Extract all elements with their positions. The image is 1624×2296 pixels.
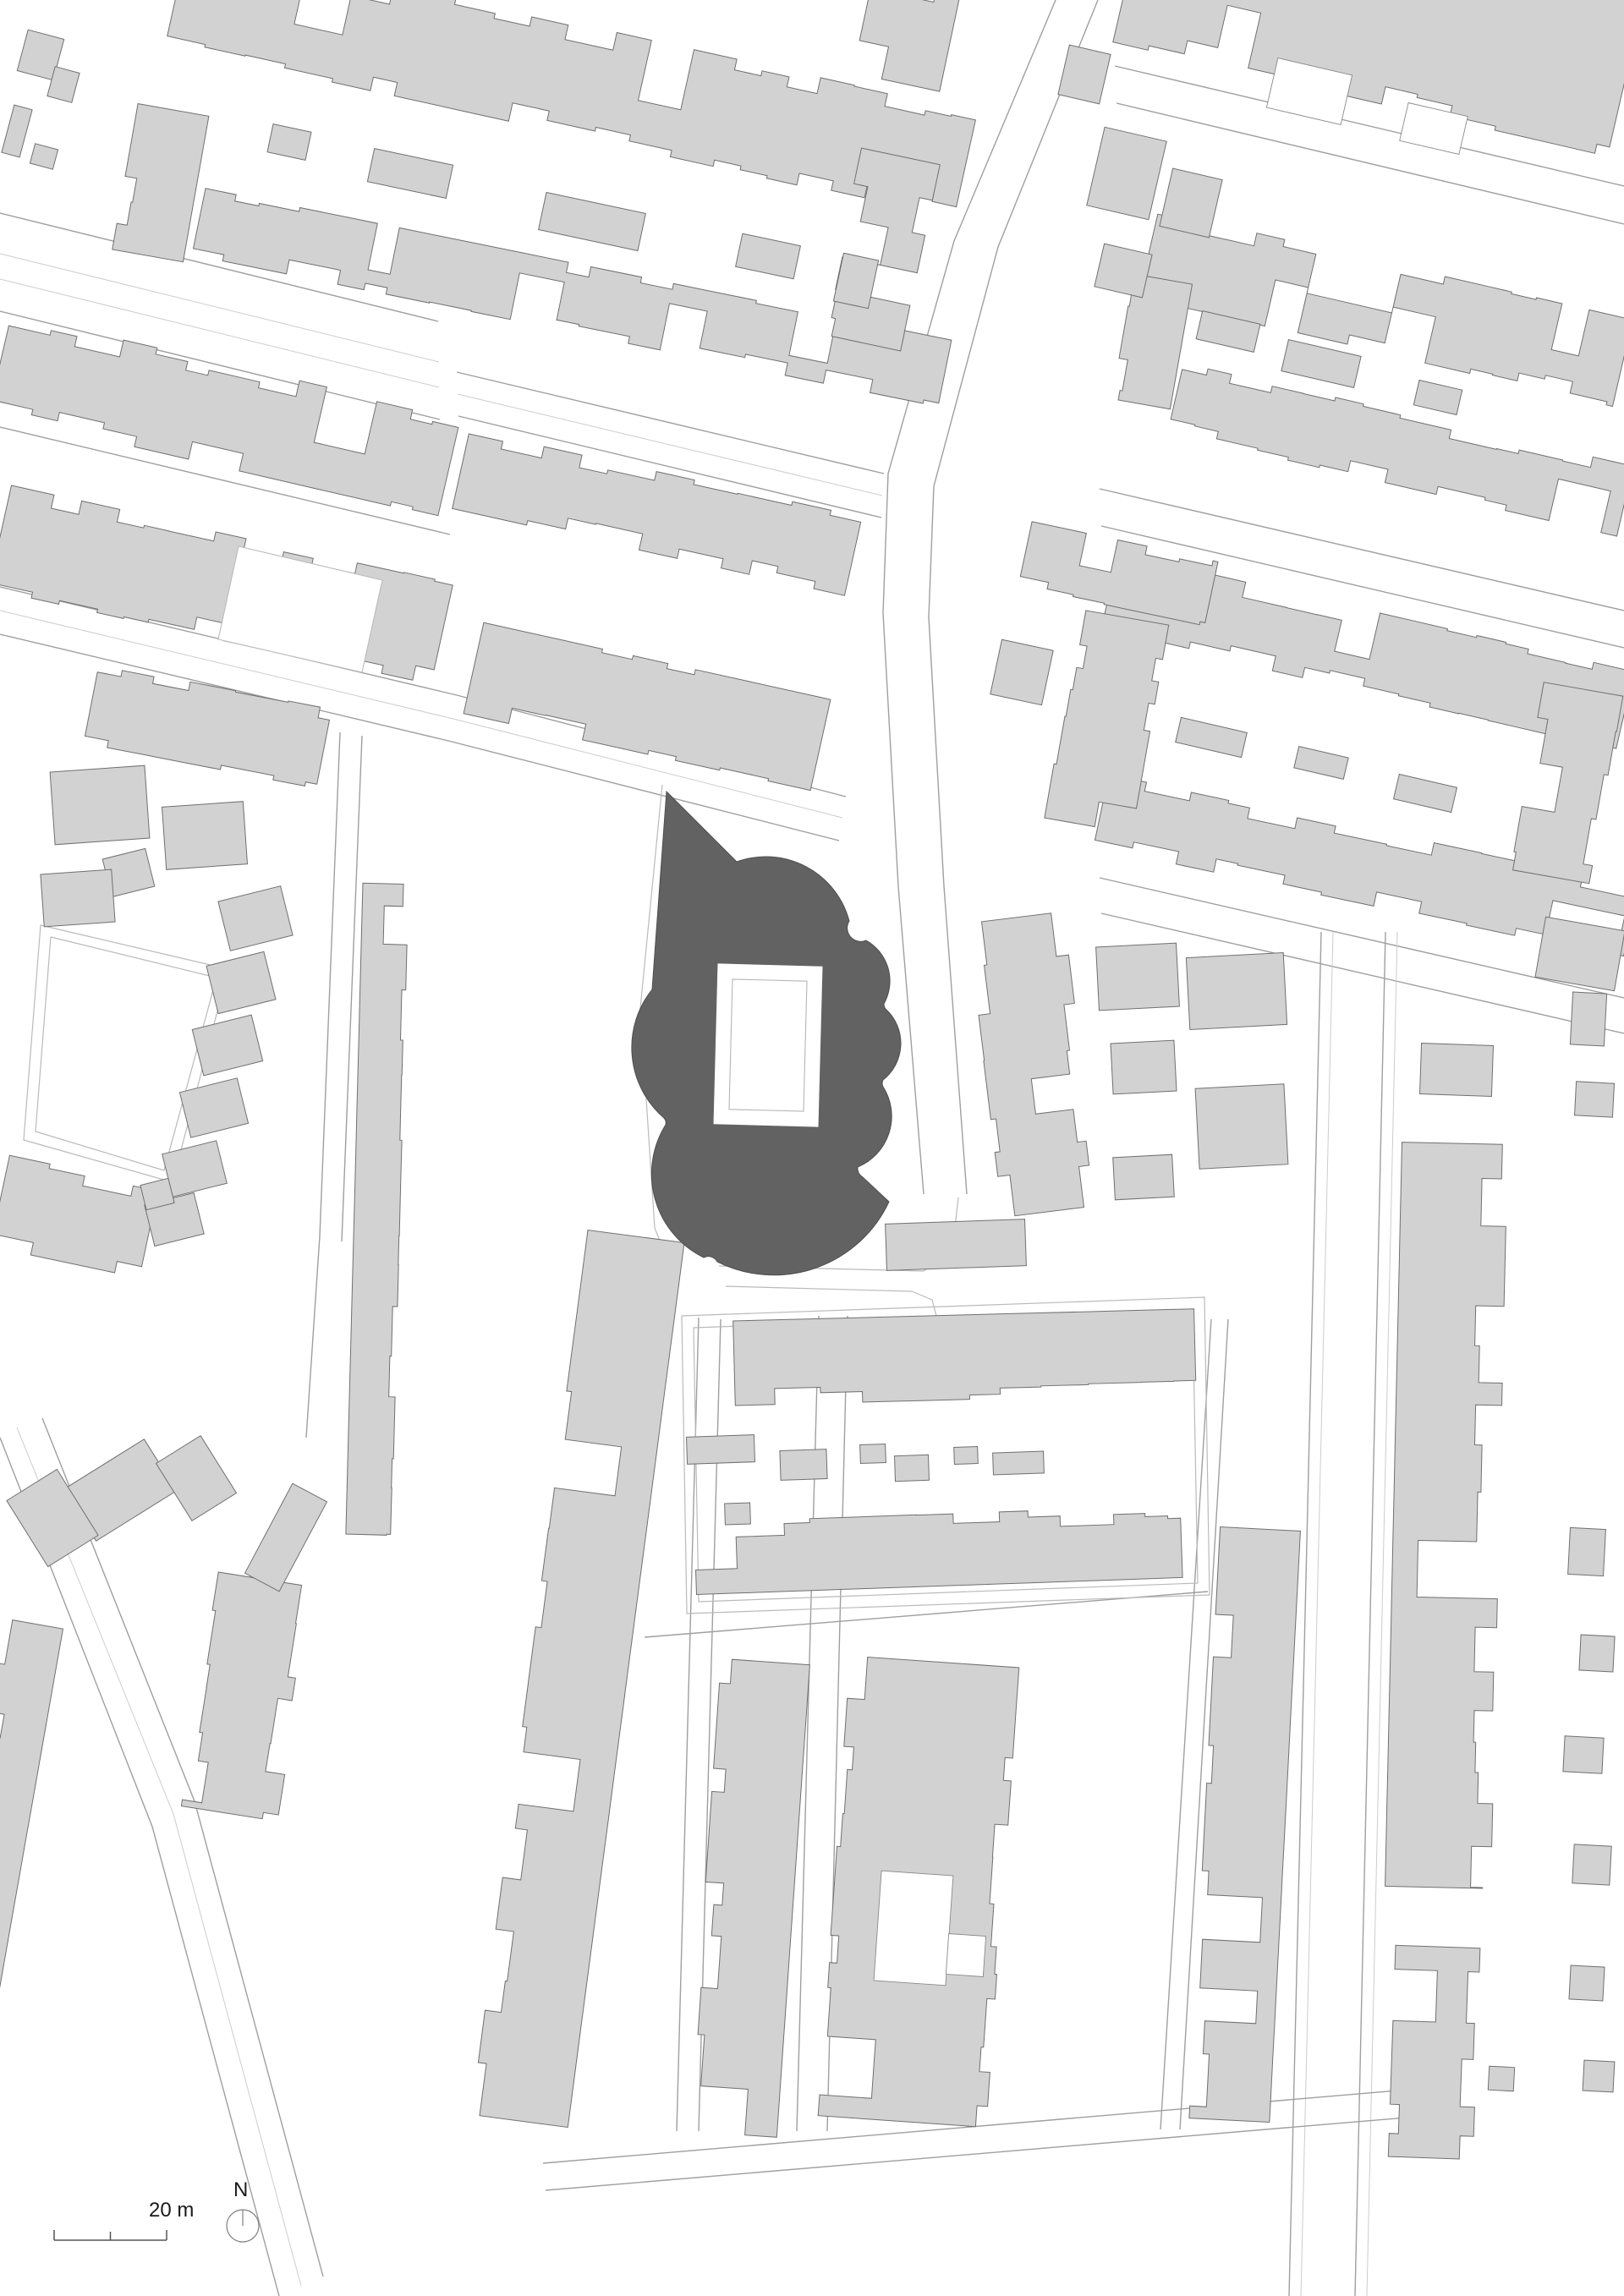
building (1281, 340, 1361, 388)
building (1413, 381, 1462, 415)
building (41, 869, 115, 927)
building (1087, 127, 1166, 219)
building-band (346, 883, 407, 1535)
building-band (1189, 1527, 1301, 2123)
building (1186, 953, 1287, 1030)
building-band (112, 104, 209, 262)
building-band (1171, 369, 1624, 536)
building (1096, 943, 1180, 1011)
courtyard-hole (874, 1871, 953, 1986)
building (780, 1449, 827, 1481)
building (1294, 747, 1348, 780)
building (1563, 1736, 1604, 1773)
building-band (0, 1155, 158, 1273)
building-band (181, 1572, 301, 1819)
building (2, 105, 32, 157)
site-plan-page: 20 m N (0, 0, 1624, 2296)
scale-bar (52, 2222, 171, 2244)
building (860, 1444, 886, 1464)
building (50, 765, 150, 845)
building (162, 802, 248, 870)
building (1568, 1527, 1606, 1575)
building (895, 1455, 930, 1481)
street-kerb-line (0, 1438, 279, 2296)
building (192, 1015, 262, 1076)
street-kerb-line (546, 2114, 1446, 2190)
building (1058, 45, 1111, 104)
building (954, 1447, 979, 1465)
parcel-outline (36, 937, 217, 1170)
building (990, 639, 1053, 704)
building (1535, 917, 1624, 990)
building (1583, 2060, 1615, 2092)
building (1572, 1844, 1611, 1885)
building (267, 124, 311, 161)
building-band (0, 326, 458, 516)
building (1569, 1965, 1605, 2001)
building (218, 886, 293, 951)
building-band (859, 0, 959, 91)
site-courtyard-inner-outline (729, 979, 807, 1111)
building (30, 144, 58, 169)
building (1575, 1082, 1615, 1117)
building (725, 1503, 751, 1525)
building (539, 193, 646, 251)
building-band (1385, 1143, 1506, 1888)
building-band (141, 0, 976, 207)
building (179, 1078, 248, 1137)
building (993, 1451, 1045, 1475)
parcel-outline (726, 1286, 936, 1316)
building-band (1113, 0, 1624, 153)
building (245, 1483, 327, 1592)
building (1195, 1084, 1288, 1169)
building (1111, 1040, 1177, 1094)
building-band (453, 434, 861, 595)
building (1420, 1044, 1494, 1097)
building (1394, 775, 1457, 813)
building (1176, 717, 1248, 757)
building (156, 1436, 237, 1521)
north-arrow-icon (223, 2207, 262, 2246)
building (886, 1219, 1027, 1271)
north-label: N (233, 2180, 248, 2200)
scale-label: 20 m (149, 2200, 194, 2221)
site-plan-map (0, 0, 1624, 2296)
building-band (464, 622, 831, 790)
building (1095, 244, 1152, 298)
building (1160, 168, 1222, 238)
building-band (979, 913, 1089, 1216)
building (367, 149, 453, 199)
street-kerb-line (306, 732, 340, 1438)
building (162, 1141, 228, 1197)
building-band (696, 1511, 1183, 1595)
building-band (698, 1659, 809, 2137)
building-band (733, 1309, 1196, 1406)
courtyard-hole (946, 1934, 985, 1977)
building (687, 1435, 755, 1465)
building (736, 233, 801, 279)
building (1570, 992, 1606, 1046)
building-band (478, 1230, 684, 2128)
building (1113, 1154, 1175, 1200)
building (1488, 2066, 1514, 2091)
building (206, 951, 276, 1013)
building-band (1388, 1945, 1480, 2159)
building (1579, 1635, 1615, 1672)
parcel-outline (24, 925, 228, 1182)
building-band (0, 1620, 63, 2096)
